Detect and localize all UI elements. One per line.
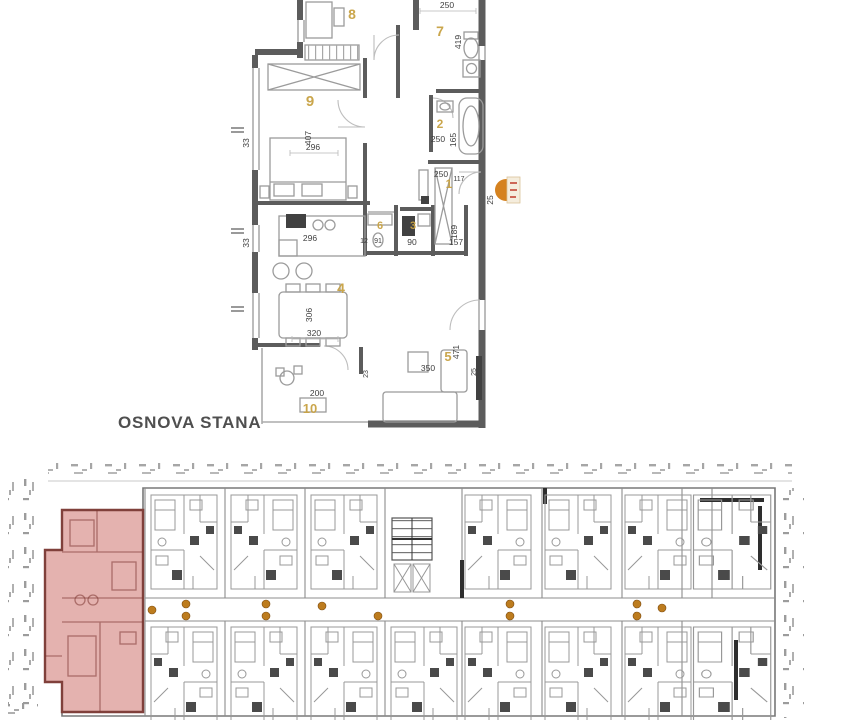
room-number-8: 8 — [348, 6, 356, 22]
dim-room7-height: 419 — [453, 35, 463, 49]
dim-room9-width: 296 — [306, 142, 320, 152]
dim-living-width: 350 — [421, 363, 435, 373]
dim-room3-width: 90 — [407, 237, 417, 247]
room-number-7: 7 — [436, 23, 444, 39]
dim-wall-left-upper: 33 — [241, 138, 251, 148]
dim-right-wall: 25 — [485, 195, 495, 205]
window-size-labels — [231, 127, 244, 312]
dim-terrace-width: 200 — [310, 388, 324, 398]
plan-title: OSNOVA STANA — [118, 413, 261, 433]
cabinet-entry — [419, 170, 429, 204]
room-number-3: 3 — [410, 220, 416, 232]
door-marker — [633, 612, 641, 620]
door-marker — [182, 612, 190, 620]
staircase — [392, 518, 432, 560]
dim-door-b: 25 — [471, 368, 478, 376]
dim-room7-width: 250 — [440, 0, 454, 10]
door-marker — [182, 600, 190, 608]
apartment-floor-plan: 8 7 9 2 1 6 3 4 5 10 250 419 407 296 33 … — [231, 0, 520, 428]
dim-bath-height: 165 — [448, 133, 458, 147]
room-number-4: 4 — [337, 280, 345, 296]
dimension-ticks-top — [48, 461, 792, 481]
dim-kitchen-width: 296 — [303, 233, 317, 243]
dimension-ticks-left — [8, 468, 34, 716]
kitchen-counter — [279, 214, 365, 256]
door-marker — [318, 602, 326, 610]
dim-wc-a: 12 — [360, 238, 368, 245]
dim-door-a: 23 — [363, 370, 370, 378]
door-marker — [506, 600, 514, 608]
building-floor-plan — [8, 461, 804, 720]
room-number-9: 9 — [306, 93, 314, 110]
dim-wc-b: 91 — [374, 238, 382, 245]
toilet-room7 — [464, 32, 478, 58]
floor-plan-page: 8 7 9 2 1 6 3 4 5 10 250 419 407 296 33 … — [0, 0, 849, 720]
dim-wall-left-lower: 33 — [241, 238, 251, 248]
dim-entry-width: 250 — [434, 169, 448, 179]
room-number-1: 1 — [446, 177, 453, 191]
door-marker — [148, 606, 156, 614]
dimension-ticks-bottom-left — [8, 700, 38, 716]
door-marker — [658, 604, 666, 612]
door-marker — [633, 600, 641, 608]
sofa-room5 — [383, 350, 467, 422]
tv-unit-room5 — [476, 356, 482, 400]
dim-entry-height: 117 — [453, 176, 464, 183]
wardrobe-x-room9 — [268, 64, 360, 90]
dim-living-height: 471 — [451, 345, 461, 359]
washing-machine-room7 — [463, 60, 480, 77]
dim-hall-width: 157 — [449, 237, 463, 247]
dim-dining-height: 306 — [304, 308, 314, 322]
room-number-2: 2 — [437, 117, 444, 131]
dimension-ticks-right — [780, 488, 804, 718]
wardrobe-strip — [305, 45, 359, 60]
floor-plan-canvas: 8 7 9 2 1 6 3 4 5 10 250 419 407 296 33 … — [0, 0, 849, 720]
dimension-labels: 250 419 407 296 33 250 165 250 117 25 12… — [241, 0, 495, 398]
door-marker — [374, 612, 382, 620]
door-marker — [506, 612, 514, 620]
dim-dining-width: 320 — [307, 328, 321, 338]
room-number-10: 10 — [303, 401, 317, 416]
compass-icon — [495, 177, 520, 203]
door-marker — [262, 600, 270, 608]
door-marker — [262, 612, 270, 620]
sink-room2 — [437, 101, 453, 112]
room-number-6: 6 — [377, 220, 383, 232]
highlighted-apartment — [45, 510, 143, 712]
dim-bath-width: 250 — [431, 134, 445, 144]
desk-room8 — [306, 2, 344, 38]
